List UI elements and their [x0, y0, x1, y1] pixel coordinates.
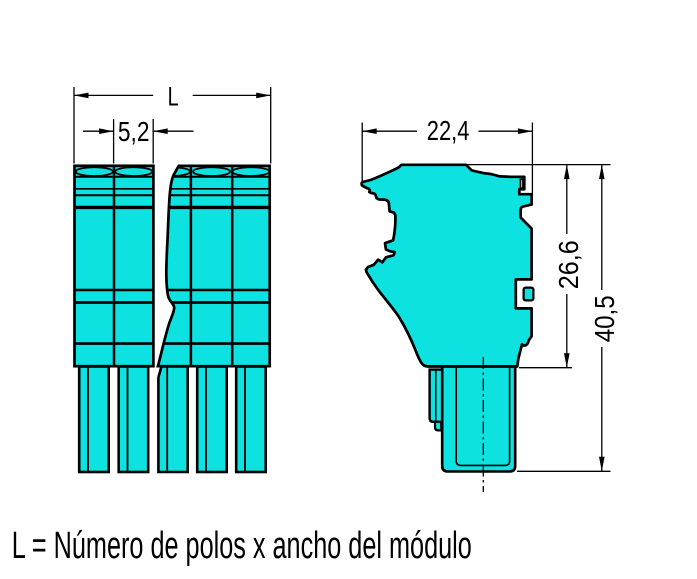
svg-text:40,5: 40,5 [589, 295, 620, 342]
svg-text:26,6: 26,6 [553, 240, 584, 289]
svg-text:22,4: 22,4 [427, 115, 470, 146]
svg-text:5,2: 5,2 [118, 116, 150, 147]
svg-text:L: L [168, 81, 179, 111]
svg-text:L = Número de polos x ancho de: L = Número de polos x ancho del módulo [12, 525, 472, 567]
